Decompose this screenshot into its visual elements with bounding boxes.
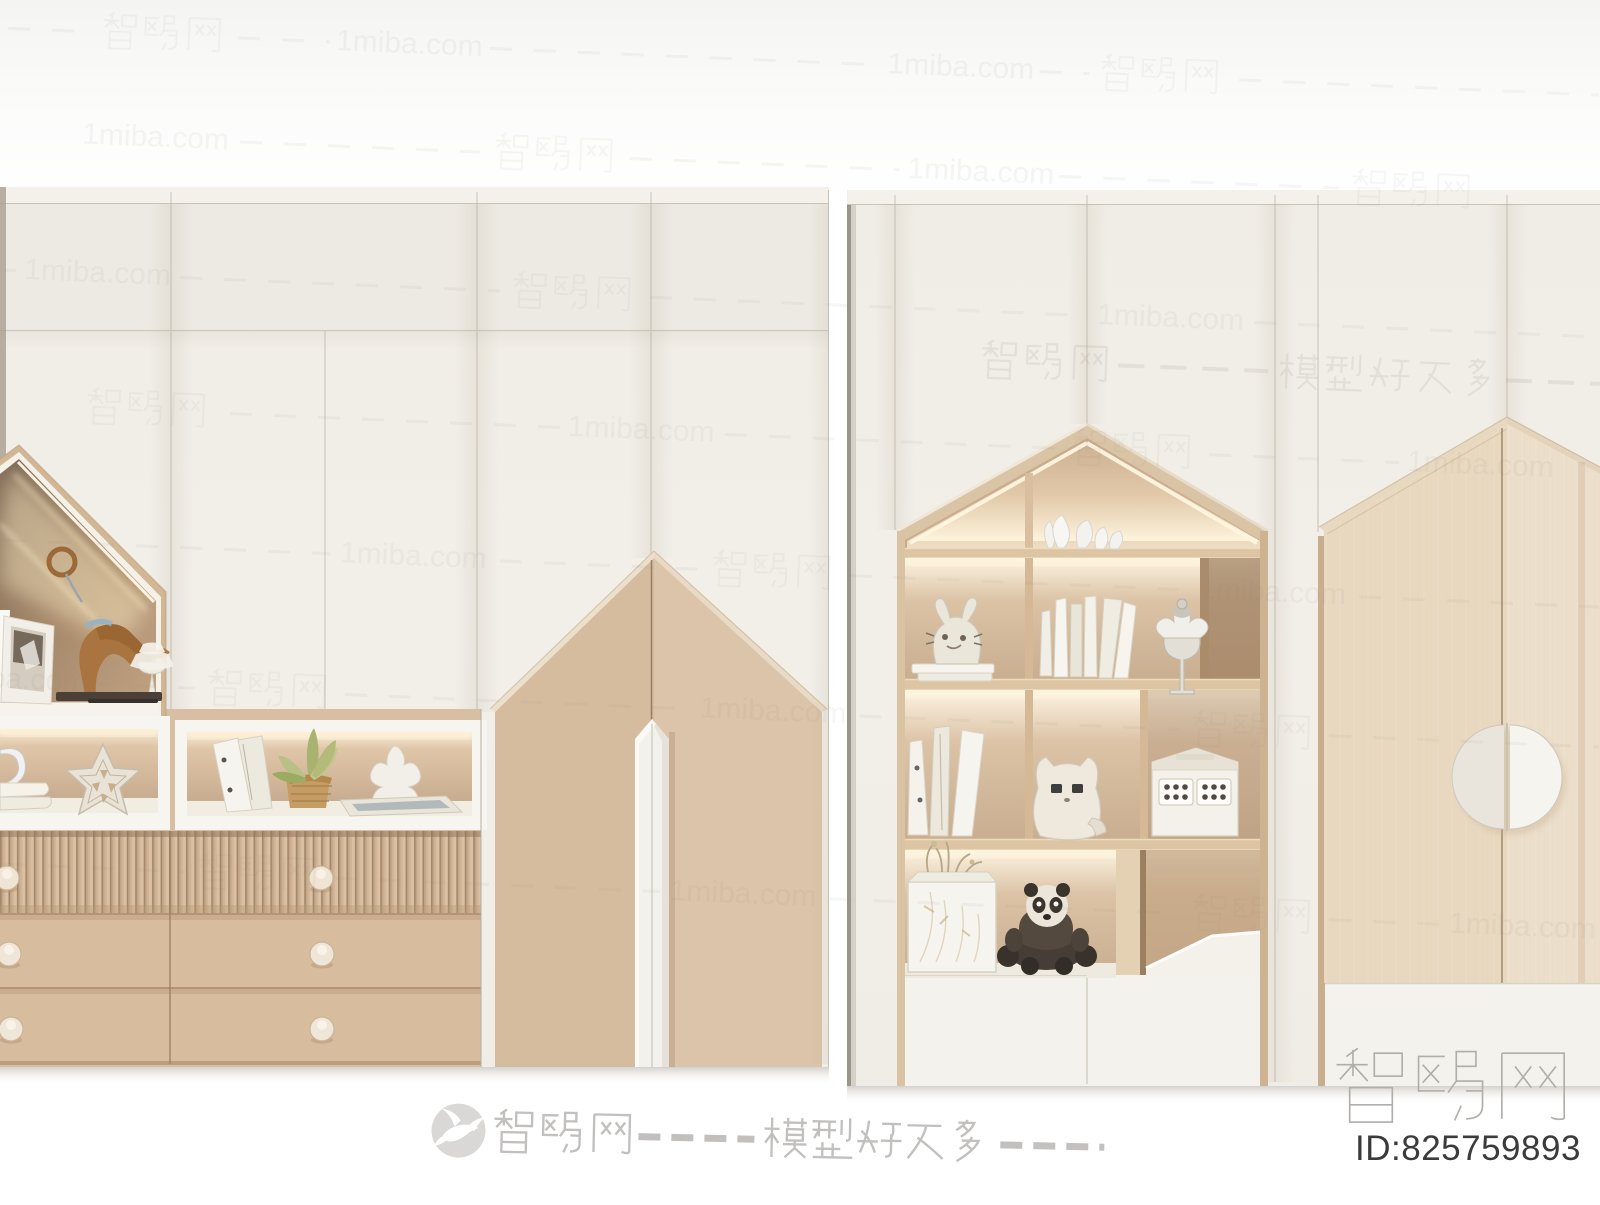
svg-text:ID:825759893: ID:825759893 bbox=[1355, 1129, 1581, 1168]
svg-text:1miba.com: 1miba.com bbox=[24, 253, 172, 292]
svg-text:1miba.com: 1miba.com bbox=[699, 691, 847, 730]
svg-text:1miba.com: 1miba.com bbox=[907, 152, 1055, 191]
svg-text:1miba.com: 1miba.com bbox=[669, 874, 817, 913]
svg-text:1miba.com: 1miba.com bbox=[1448, 907, 1596, 946]
svg-text:1miba.com: 1miba.com bbox=[335, 24, 483, 63]
svg-text:1miba.com: 1miba.com bbox=[82, 117, 230, 156]
svg-text:1miba.com: 1miba.com bbox=[1097, 298, 1245, 337]
svg-text:1miba.com: 1miba.com bbox=[1199, 572, 1347, 611]
svg-text:1miba.com: 1miba.com bbox=[1406, 445, 1554, 484]
svg-text:1miba.com: 1miba.com bbox=[0, 660, 88, 699]
svg-text:1miba.com: 1miba.com bbox=[887, 47, 1035, 86]
svg-text:1miba.com: 1miba.com bbox=[567, 410, 715, 449]
svg-text:1miba.com: 1miba.com bbox=[339, 536, 487, 575]
